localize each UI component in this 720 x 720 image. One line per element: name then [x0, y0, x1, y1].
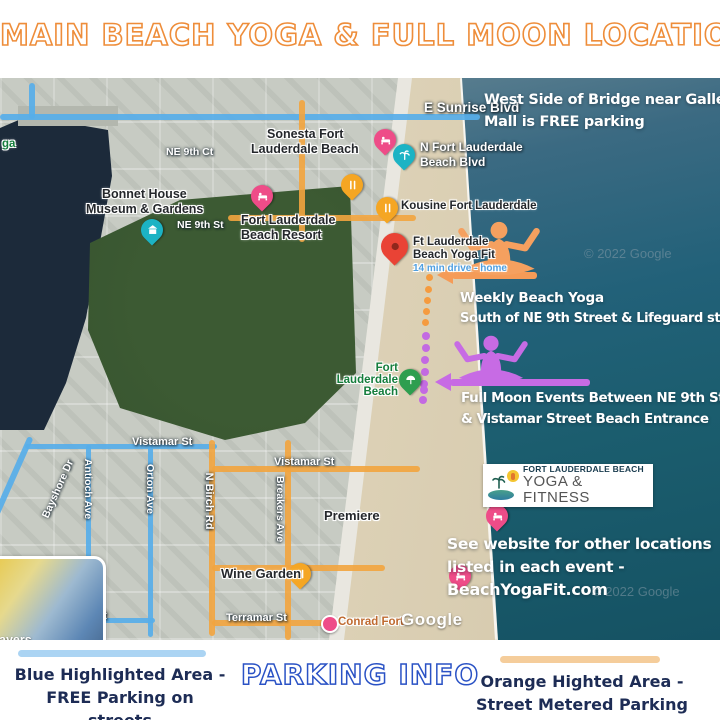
blue-street-north-stub [29, 83, 35, 119]
street-label-orton: Orton Ave [144, 449, 156, 529]
beach-umbrella-icon [405, 375, 416, 386]
purple-meditating-person-icon [448, 334, 534, 388]
poi-label-resort-1[interactable]: Fort Lauderdale [241, 213, 335, 227]
orange-legend-line-2: Street Metered Parking [476, 693, 688, 716]
museum-icon [147, 225, 158, 236]
note-website-2: listed in each event - [447, 558, 624, 576]
parking-legend: Blue Highlighted Area - FREE Parking on … [0, 640, 720, 720]
copyright-watermark: © 2022 Google [592, 584, 680, 599]
bed-icon [380, 135, 391, 146]
street-label-antioch: Antioch Ave [82, 449, 94, 529]
orange-route-dot [424, 297, 431, 304]
street-label-breakers: Breakers Ave [274, 469, 286, 549]
logo-subtitle: YOGA & FITNESS [523, 474, 649, 506]
orange-route-dot [423, 308, 430, 315]
street-label-bayshore: Bayshore Dr [36, 450, 80, 528]
orange-legend-text: Orange Highted Area - Street Metered Par… [476, 670, 688, 716]
purple-route-dot [422, 332, 430, 340]
orange-legend-line-1: Orange Highted Area - [476, 670, 688, 693]
note-website-1: See website for other locations [447, 535, 711, 553]
palm-tree-icon [399, 150, 410, 161]
satellite-map: E Sunrise Blvd NE 9th Ct NE 9th St N For… [0, 78, 720, 640]
poi-label-park-fragment: ga [2, 138, 15, 150]
blue-legend-line-2: FREE Parking on streets [14, 686, 226, 720]
layers-button[interactable]: ayers [0, 556, 106, 640]
marker-dot-icon [389, 241, 401, 253]
note-weekly-yoga-1: Weekly Beach Yoga [460, 290, 604, 306]
purple-route-dot [421, 356, 429, 364]
street-label-vistamar-west: Vistamar St [132, 436, 192, 448]
orange-route-dot [426, 274, 433, 281]
orange-route-dot [422, 319, 429, 326]
street-label-beach-blvd-1: N Fort Lauderdale [420, 140, 523, 154]
poi-label-wine-garden[interactable]: Wine Garden [221, 566, 301, 581]
poi-label-yogafit-2[interactable]: Beach Yoga Fit [413, 249, 495, 261]
fork-knife-icon [347, 180, 358, 191]
street-label-birch: N Birch Rd [203, 461, 215, 541]
palm-tree-icon [491, 474, 507, 490]
street-label-vistamar-east: Vistamar St [274, 456, 334, 468]
orange-route-dot [425, 286, 432, 293]
page-title: MAIN BEACH YOGA & FULL MOON LOCATION [0, 18, 720, 52]
resort-icon [257, 191, 268, 202]
copyright-watermark: © 2022 Google [584, 246, 672, 261]
street-label-beach-blvd-2: Beach Blvd [420, 155, 485, 169]
poi-label-sonesta-2[interactable]: Lauderdale Beach [251, 142, 359, 156]
blue-legend-swoosh [18, 650, 206, 657]
bed-icon [492, 511, 503, 522]
layers-button-label: ayers [0, 633, 32, 640]
beach-scene-icon [487, 469, 521, 503]
blue-legend-text: Blue Highlighted Area - FREE Parking on … [14, 663, 226, 720]
orange-legend-swoosh [500, 656, 660, 663]
street-label-ne9st: NE 9th St [177, 219, 224, 231]
parking-info-title: PARKING INFO [230, 658, 490, 691]
island-water-icon [488, 490, 514, 500]
poi-label-beach-2: Lauderdale [337, 374, 398, 386]
poi-label-beach[interactable]: Fort Lauderdale Beach [337, 362, 398, 398]
poi-label-beach-1: Fort [337, 362, 398, 374]
note-full-moon-1: Full Moon Events Between NE 9th Street [461, 390, 720, 406]
poi-label-kousine[interactable]: Kousine Fort Lauderdale [401, 200, 536, 212]
blue-street-sunrise [0, 114, 480, 120]
note-full-moon-2: & Vistamar Street Beach Entrance [461, 411, 709, 427]
purple-route-dot [422, 344, 430, 352]
note-weekly-yoga-2: South of NE 9th Street & Lifeguard stand… [460, 311, 720, 326]
poi-label-bonnet-2[interactable]: Museum & Gardens [86, 202, 203, 216]
note-west-side-1: West Side of Bridge near Galleria [484, 92, 720, 108]
poi-label-sonesta-1[interactable]: Sonesta Fort [267, 127, 343, 141]
blue-legend-line-1: Blue Highlighted Area - [14, 663, 226, 686]
note-west-side-2: Mall is FREE parking [484, 114, 644, 130]
conrad-hotel-pin[interactable] [321, 615, 339, 633]
street-label-ne9ct: NE 9th Ct [166, 146, 213, 158]
poi-label-premiere[interactable]: Premiere [324, 508, 380, 523]
fork-knife-icon [382, 203, 393, 214]
header-band: MAIN BEACH YOGA & FULL MOON LOCATION [0, 0, 720, 78]
purple-route-dot [421, 368, 429, 376]
purple-route-dot [420, 386, 428, 394]
jumping-person-icon [511, 473, 515, 480]
poi-label-resort-2[interactable]: Beach Resort [241, 228, 322, 242]
poi-label-yogafit-1[interactable]: Ft Lauderdale [413, 236, 488, 248]
flyer-page: MAIN BEACH YOGA & FULL MOON LOCATION [0, 0, 720, 720]
drive-time-label: 14 min drive - home [413, 263, 507, 274]
logo-text: FORT LAUDERDALE BEACH YOGA & FITNESS [521, 465, 649, 505]
studio-logo: FORT LAUDERDALE BEACH YOGA & FITNESS [483, 464, 653, 507]
google-wordmark: Google [401, 610, 463, 630]
poi-label-conrad[interactable]: Conrad Fort [338, 616, 404, 628]
street-label-terramar-east: Terramar St [226, 612, 287, 624]
purple-route-dot [419, 396, 427, 404]
note-website-url: BeachYogaFit.com [447, 580, 608, 599]
poi-label-beach-3: Beach [337, 386, 398, 398]
poi-label-bonnet-1[interactable]: Bonnet House [102, 187, 187, 201]
